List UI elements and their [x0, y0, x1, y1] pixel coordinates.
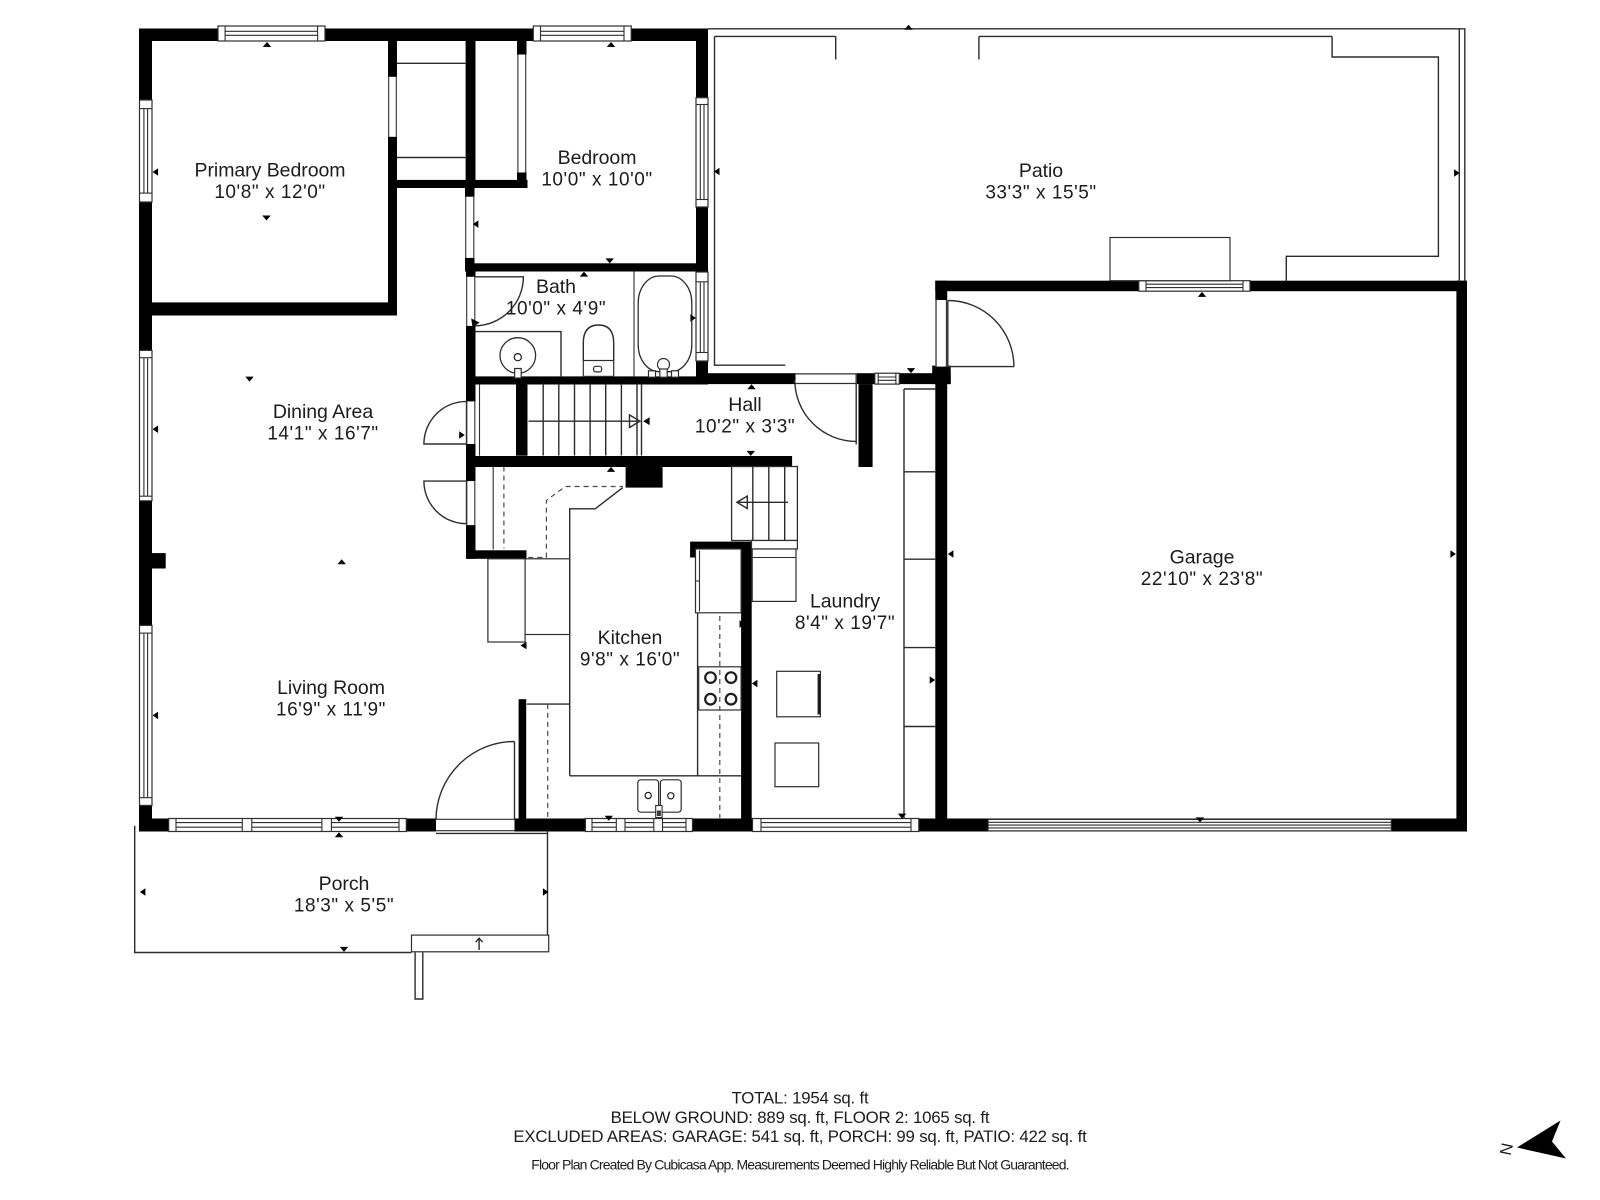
svg-text:EXCLUDED AREAS: GARAGE: 541 sq: EXCLUDED AREAS: GARAGE: 541 sq. ft, PORC… — [513, 1127, 1087, 1146]
svg-text:Dining Area: Dining Area — [273, 401, 373, 423]
svg-text:33'3" x 15'5": 33'3" x 15'5" — [985, 183, 1096, 204]
svg-text:18'3" x 5'5": 18'3" x 5'5" — [294, 896, 394, 917]
svg-text:10'0" x 10'0": 10'0" x 10'0" — [541, 170, 652, 191]
svg-text:Patio: Patio — [1019, 160, 1063, 182]
svg-text:Garage: Garage — [1170, 547, 1235, 569]
svg-text:10'2" x 3'3": 10'2" x 3'3" — [695, 417, 795, 438]
svg-text:14'1" x 16'7": 14'1" x 16'7" — [267, 424, 378, 445]
svg-text:9'8" x 16'0": 9'8" x 16'0" — [580, 649, 680, 670]
svg-text:10'8" x 12'0": 10'8" x 12'0" — [214, 182, 325, 203]
svg-text:Bath: Bath — [536, 276, 576, 298]
svg-text:TOTAL: 1954 sq. ft: TOTAL: 1954 sq. ft — [732, 1089, 870, 1108]
svg-text:22'10" x 23'8": 22'10" x 23'8" — [1141, 569, 1263, 590]
svg-text:Kitchen: Kitchen — [598, 627, 663, 649]
svg-text:10'0" x 4'9": 10'0" x 4'9" — [506, 299, 606, 320]
svg-text:16'9" x 11'9": 16'9" x 11'9" — [276, 699, 386, 720]
svg-text:Porch: Porch — [319, 873, 370, 895]
svg-text:8'4" x 19'7": 8'4" x 19'7" — [795, 613, 895, 634]
svg-text:Living Room: Living Room — [277, 677, 385, 699]
svg-text:Hall: Hall — [728, 394, 761, 416]
svg-text:Bedroom: Bedroom — [558, 147, 637, 169]
svg-text:Primary Bedroom: Primary Bedroom — [195, 159, 346, 181]
svg-text:BELOW GROUND: 889 sq. ft, FLOO: BELOW GROUND: 889 sq. ft, FLOOR 2: 1065 … — [611, 1108, 990, 1127]
svg-text:Laundry: Laundry — [810, 591, 880, 613]
svg-text:Floor Plan Created By Cubicasa: Floor Plan Created By Cubicasa App. Meas… — [531, 1157, 1068, 1173]
